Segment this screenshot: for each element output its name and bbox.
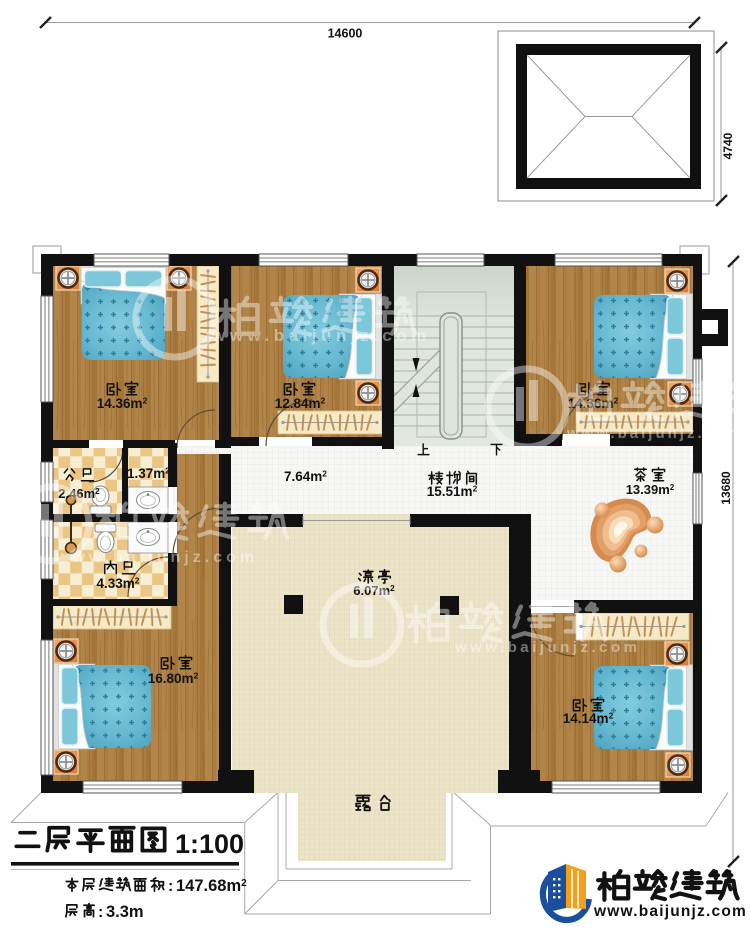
svg-text:15.51m2: 15.51m2 [427, 484, 478, 499]
svg-text::: : [168, 878, 173, 895]
svg-text::: : [98, 904, 103, 921]
svg-text:1:100: 1:100 [175, 829, 244, 859]
svg-text:www.baijunjz.com: www.baijunjz.com [55, 549, 258, 566]
svg-text:7.64m2: 7.64m2 [284, 469, 327, 484]
svg-text:1.37m2: 1.37m2 [127, 466, 170, 481]
svg-text:13680: 13680 [719, 471, 733, 505]
svg-text:www.baijunjz.com: www.baijunjz.com [211, 326, 431, 345]
svg-text:www.baijunjz.com: www.baijunjz.com [566, 425, 744, 442]
svg-text:14.14m2: 14.14m2 [563, 711, 614, 726]
svg-text:13.39m2: 13.39m2 [626, 482, 675, 497]
svg-text:www.baijunjz.com: www.baijunjz.com [454, 639, 640, 656]
svg-text:4.33m2: 4.33m2 [97, 576, 140, 591]
svg-text:16.80m2: 16.80m2 [148, 671, 199, 686]
svg-text:14600: 14600 [328, 27, 363, 41]
svg-text:14.36m2: 14.36m2 [97, 396, 148, 411]
svg-text:147.68m2: 147.68m2 [176, 877, 247, 895]
svg-text:www.baijunjz.com: www.baijunjz.com [593, 903, 747, 920]
svg-text:4740: 4740 [721, 132, 735, 159]
svg-text:3.3m: 3.3m [106, 903, 144, 921]
svg-text:12.84m2: 12.84m2 [275, 396, 326, 411]
